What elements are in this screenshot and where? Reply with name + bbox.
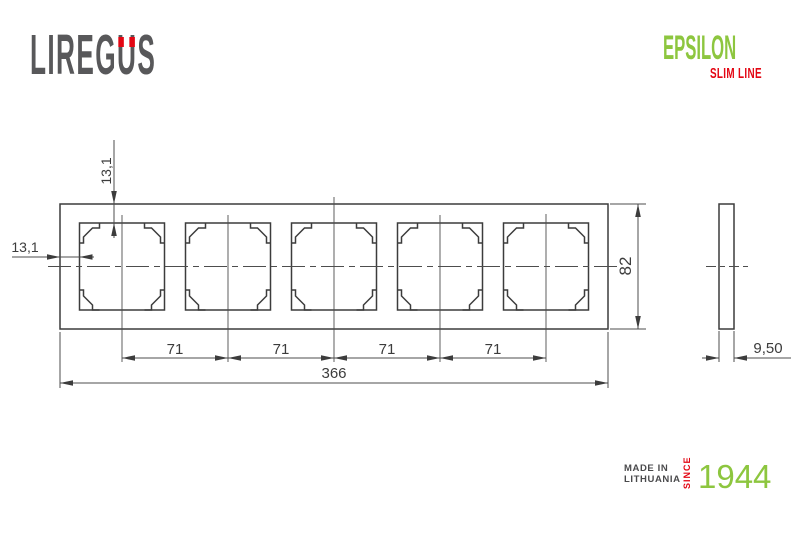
dim-label-pitch-3: 71: [379, 341, 396, 358]
dim-label-offset-left: 13,1: [11, 239, 38, 255]
year-label: 1944: [698, 461, 771, 492]
page: LIREGUS EPSILON SLIM LINE: [0, 0, 800, 533]
dim-label-offset-top: 13,1: [98, 157, 114, 184]
technical-drawing: 13,1 13,1 82 71 71: [0, 0, 800, 533]
dimension-offset-left: 13,1: [11, 239, 94, 260]
dimension-thickness: 9,50: [702, 331, 791, 362]
made-in-label: MADE IN LITHUANIA: [624, 464, 681, 485]
dim-label-pitch-2: 71: [273, 341, 290, 358]
since-label: SINCE: [683, 456, 692, 489]
dim-label-height: 82: [616, 257, 635, 276]
dim-label-thickness: 9,50: [753, 340, 782, 357]
dim-label-total-width: 366: [321, 365, 346, 382]
dim-label-pitch-4: 71: [485, 341, 502, 358]
made-in-line2: LITHUANIA: [624, 475, 681, 486]
dim-label-pitch-1: 71: [167, 341, 184, 358]
dimension-height: 82: [610, 204, 646, 329]
made-in-line1: MADE IN: [624, 464, 681, 475]
